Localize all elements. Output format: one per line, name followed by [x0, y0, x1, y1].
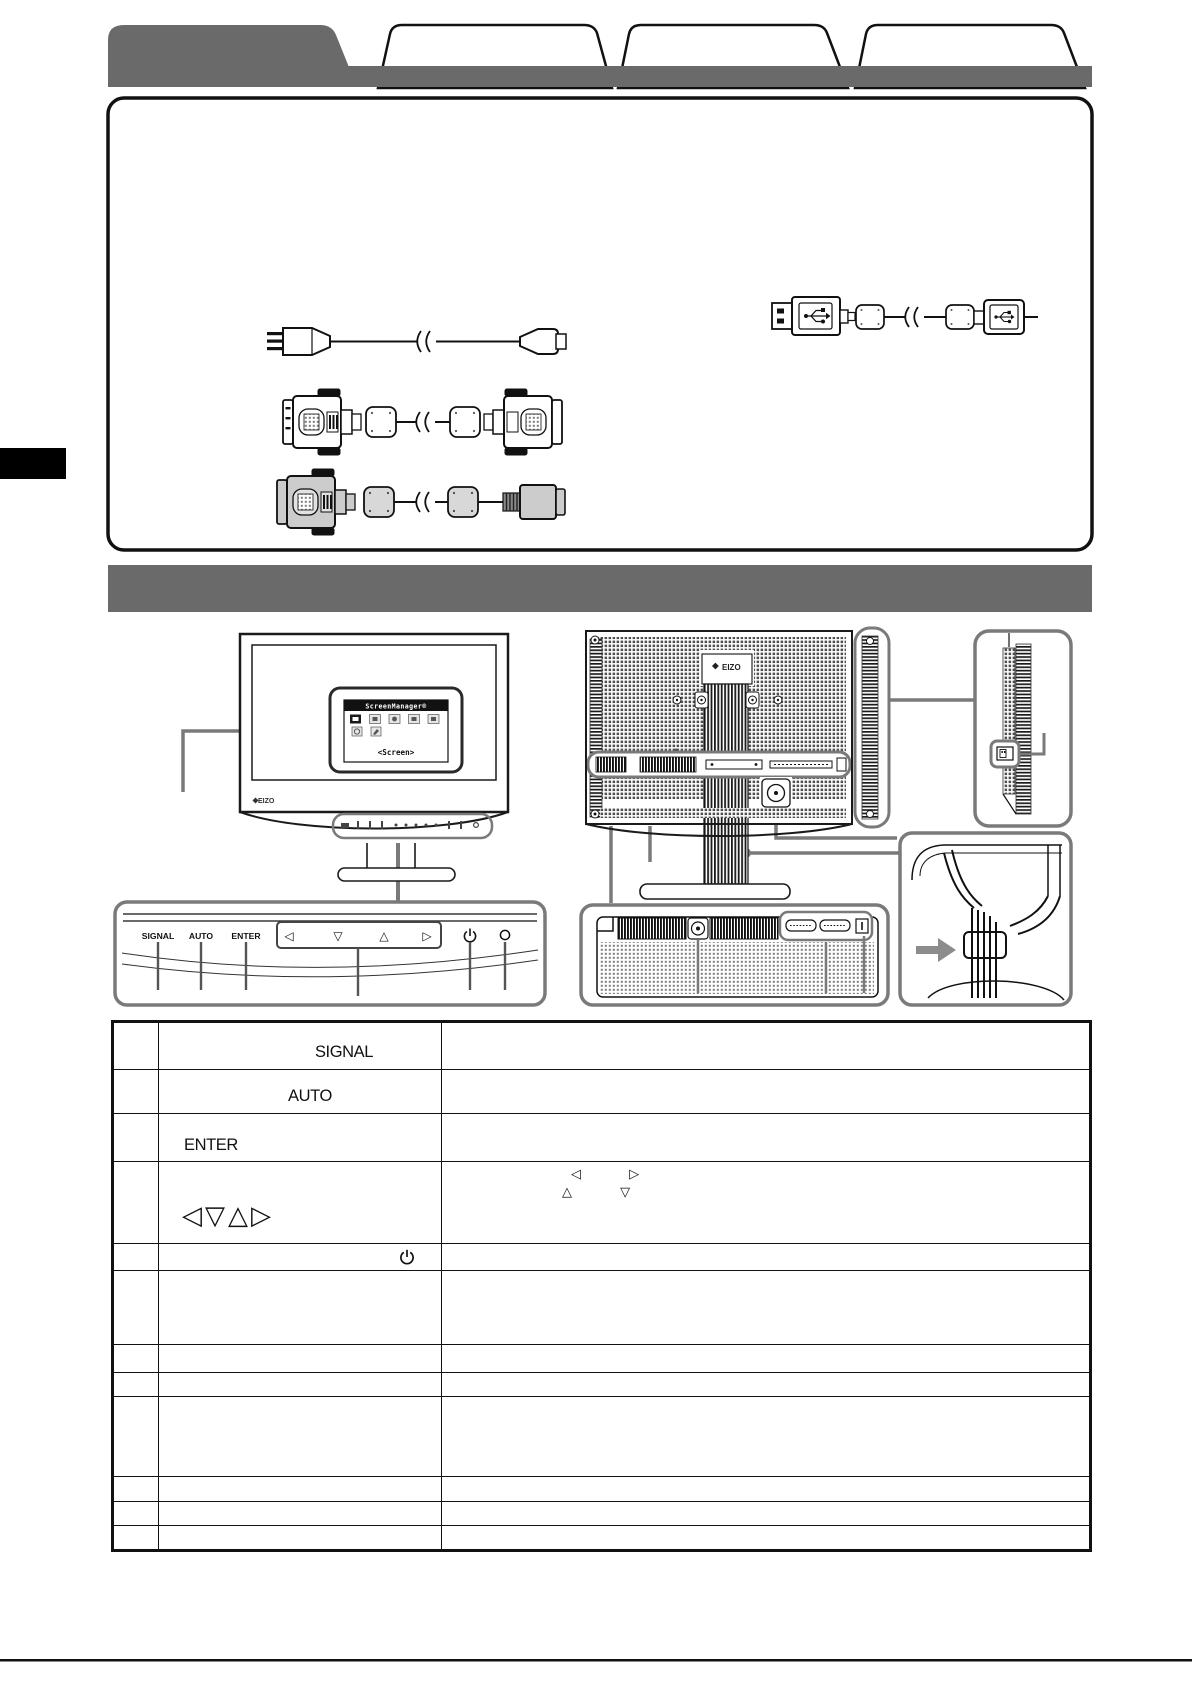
rear-left-vent	[590, 639, 602, 817]
row-label-cell	[158, 1345, 441, 1372]
table-row	[114, 1396, 1089, 1476]
auto-label: AUTO	[288, 1087, 332, 1106]
row-number-cell	[114, 1477, 158, 1501]
row-number-cell	[114, 1526, 158, 1549]
row-desc-cell	[441, 1114, 1089, 1161]
side-vent-edge	[1016, 644, 1031, 814]
power-icon	[399, 1249, 415, 1266]
table-row	[114, 1501, 1089, 1525]
table-row: ◁▽△▷ ◁ ▷ △ ▽	[114, 1161, 1089, 1243]
signal-input-connectors	[780, 912, 872, 940]
enter-button-label: ENTER	[231, 931, 261, 941]
row-desc-cell	[441, 1244, 1089, 1270]
side-front-edge	[1003, 648, 1015, 794]
page-edge-tab-marker	[0, 448, 66, 479]
cable-holder-closeup	[900, 833, 1071, 1005]
row-number-cell	[114, 1162, 158, 1243]
monitor-side-view	[975, 631, 1071, 826]
table-row	[114, 1344, 1089, 1372]
arrow-right-icon: ▷	[422, 929, 432, 943]
row-label-cell: AUTO	[158, 1070, 441, 1113]
rear-right-vent-highlight	[855, 628, 889, 827]
row-label-cell	[158, 1373, 441, 1396]
row-desc-cell	[441, 1373, 1089, 1396]
up-down-glyphs: △ ▽	[562, 1184, 652, 1202]
front-eizo-logo: EIZO	[258, 798, 275, 805]
table-row: SIGNAL	[114, 1023, 1089, 1069]
setup-guide-page: { "page": { "bg": "#ffffff", "accent_gra…	[0, 0, 1192, 1685]
row-number-cell	[114, 1345, 158, 1372]
row-desc-cell: ◁ ▷ △ ▽	[441, 1162, 1089, 1243]
row-label-cell	[158, 1477, 441, 1501]
table-row: AUTO	[114, 1069, 1089, 1113]
row-number-cell	[114, 1397, 158, 1476]
page-tabs	[108, 25, 1092, 88]
table-row	[114, 1476, 1089, 1501]
row-desc-cell	[441, 1271, 1089, 1344]
row-number-cell	[114, 1502, 158, 1525]
row-label-cell: ◁▽△▷	[158, 1162, 441, 1243]
rear-connector-strip	[588, 752, 850, 777]
row-number-cell	[114, 1023, 158, 1069]
row-label-cell	[158, 1397, 441, 1476]
row-desc-cell	[441, 1397, 1089, 1476]
screenmanager-callout: ScreenManager® <Screen>	[330, 688, 462, 772]
table-row	[114, 1270, 1089, 1344]
direction-buttons-label: ◁▽△▷	[182, 1201, 274, 1231]
accessories-box	[108, 98, 1092, 550]
row-desc-cell	[441, 1502, 1089, 1525]
row-label-cell: SIGNAL	[158, 1023, 441, 1069]
row-number-cell	[114, 1114, 158, 1161]
left-right-glyphs: ◁ ▷	[571, 1166, 661, 1184]
rear-connector-closeup	[581, 905, 888, 1005]
table-row	[114, 1525, 1089, 1549]
table-row	[114, 1243, 1089, 1270]
arrow-left-icon: ◁	[283, 929, 293, 943]
front-buttons-strip	[333, 814, 492, 838]
row-desc-cell	[441, 1023, 1089, 1069]
row-number-cell	[114, 1070, 158, 1113]
row-number-cell	[114, 1244, 158, 1270]
table-row: ENTER	[114, 1113, 1089, 1161]
control-panel-closeup: SIGNAL AUTO ENTER ◁ ▽ △ ▷	[115, 902, 545, 1005]
monitor-front-view: EIZO ScreenManager®	[183, 634, 508, 902]
row-desc-cell	[441, 1345, 1089, 1372]
row-label-cell	[158, 1244, 441, 1270]
row-label-cell: ENTER	[158, 1114, 441, 1161]
security-lock-slot	[760, 777, 792, 809]
row-number-cell	[114, 1373, 158, 1396]
row-label-cell	[158, 1502, 441, 1525]
arrow-buttons-box	[277, 922, 441, 948]
osd-menu-label: <Screen>	[378, 748, 415, 757]
tab-1-selected	[108, 25, 357, 87]
section-header-bar	[108, 565, 1092, 612]
side-usb-port-highlight	[991, 741, 1019, 767]
row-desc-cell	[441, 1070, 1089, 1113]
osd-title: ScreenManager®	[365, 703, 426, 711]
rear-stand-base	[640, 884, 790, 899]
page-bottom-rule	[0, 1659, 1192, 1662]
controls-table: SIGNAL AUTO ENTER ◁▽△▷ ◁ ▷ △ ▽	[111, 1020, 1092, 1552]
signal-label: SIGNAL	[315, 1043, 373, 1062]
row-desc-cell	[441, 1477, 1089, 1501]
signal-button-label: SIGNAL	[142, 931, 174, 941]
arrow-up-icon: △	[379, 929, 389, 943]
enter-label: ENTER	[184, 1136, 238, 1155]
row-desc-cell	[441, 1526, 1089, 1549]
arrow-down-icon: ▽	[333, 929, 343, 943]
row-label-cell	[158, 1526, 441, 1549]
table-row	[114, 1372, 1089, 1396]
power-socket	[688, 918, 708, 939]
row-label-cell	[158, 1271, 441, 1344]
rear-eizo-logo: EIZO	[722, 663, 741, 672]
rear-stand-column	[704, 684, 748, 884]
auto-button-label: AUTO	[189, 931, 214, 941]
row-number-cell	[114, 1271, 158, 1344]
